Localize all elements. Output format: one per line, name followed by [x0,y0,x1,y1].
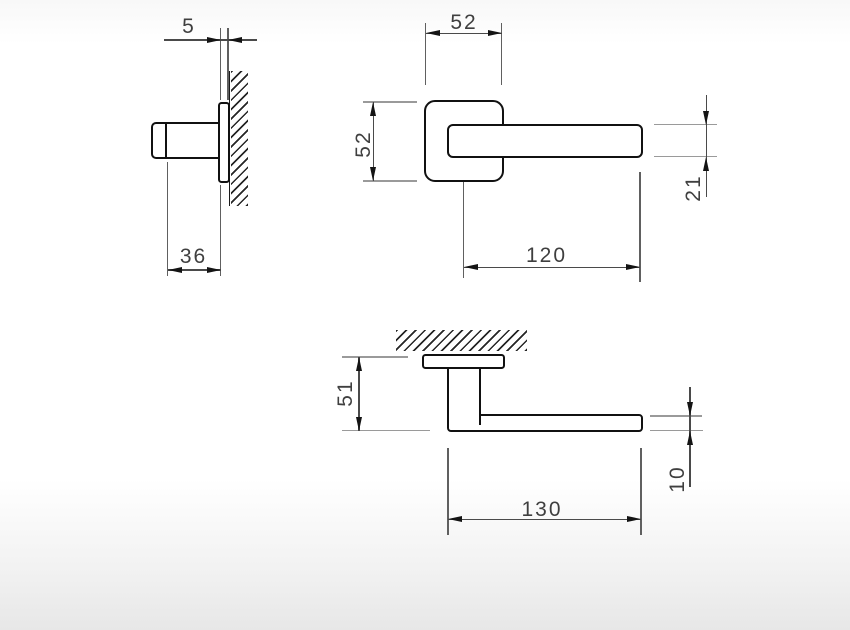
arrowhead-icon [687,402,693,416]
arrowhead-icon [426,30,440,36]
extension-line-gray [650,415,702,417]
dim-label-lever-height: 21 [683,168,705,208]
arrowhead-icon [464,264,478,270]
extension-line [167,162,168,276]
dim-label-rosette-thickness: 5 [174,16,204,38]
dim-label-handle-height: 51 [335,373,357,413]
arrowhead-icon [626,264,640,270]
door-surface-hatch [396,330,527,351]
dim-label-rosette-depth: 36 [174,246,214,268]
neck-end-cap-line [165,124,167,159]
extension-line-gray [342,356,408,358]
arrowhead-icon [703,111,709,125]
rosette-plate-outline [218,102,229,183]
arrowhead-icon [627,516,641,522]
wall-hatch [231,71,248,206]
rosette-plate-profile-outline [422,354,505,368]
handle-neck-outline [151,122,221,159]
arrowhead-icon [356,357,362,371]
extension-line-gray [650,430,703,432]
arrowhead-icon [488,30,502,36]
dim-label-lever-length: 120 [522,245,572,267]
technical-drawing-canvas: 5 36 52 52 120 21 [0,0,850,630]
dimension-line [464,267,641,268]
arrowhead-icon [207,37,221,43]
arrowhead-icon [370,102,376,116]
arrowhead-icon [228,37,242,43]
arrowhead-icon [356,417,362,431]
lever-outline [447,124,643,158]
arrowhead-icon [370,167,376,181]
dim-label-lever-thickness: 10 [667,459,689,499]
neck-profile-outline [447,367,481,425]
dim-label-handle-length: 130 [517,499,567,521]
arrowhead-icon [687,431,693,445]
dim-label-rosette-width: 52 [444,12,484,34]
extension-line [220,185,221,276]
arrowhead-icon [448,516,462,522]
dim-label-rosette-height: 52 [353,124,375,164]
